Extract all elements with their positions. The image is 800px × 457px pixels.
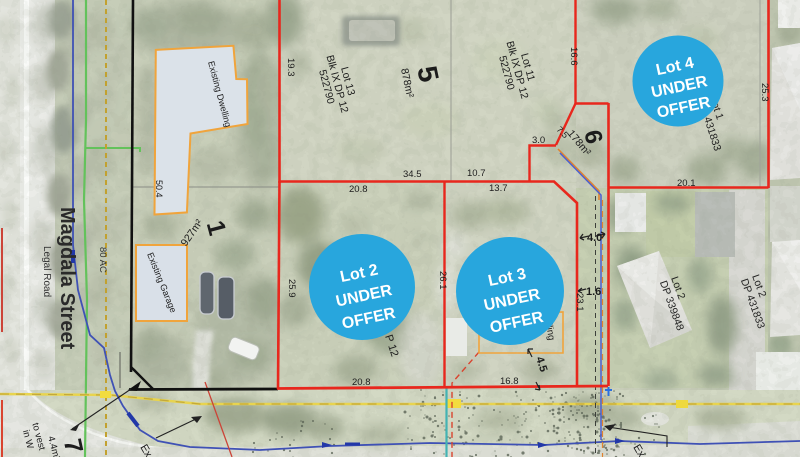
- svg-text:25.3: 25.3: [759, 83, 770, 102]
- svg-text:19.3: 19.3: [285, 58, 296, 77]
- svg-text:20.8: 20.8: [349, 184, 368, 195]
- svg-text:26.1: 26.1: [437, 271, 448, 290]
- svg-text:80 AC: 80 AC: [97, 247, 108, 273]
- svg-text:20.1: 20.1: [677, 178, 696, 189]
- svg-text:23.1: 23.1: [574, 293, 585, 312]
- svg-text:16.8: 16.8: [500, 376, 519, 387]
- svg-text:10.7: 10.7: [467, 168, 486, 179]
- svg-text:13.7: 13.7: [489, 183, 508, 194]
- svg-text:4.0: 4.0: [587, 232, 602, 244]
- svg-text:1.6: 1.6: [586, 286, 601, 298]
- svg-text:Legal Road: Legal Road: [41, 246, 52, 297]
- svg-text:34.5: 34.5: [403, 169, 422, 180]
- svg-text:16.6: 16.6: [568, 47, 579, 66]
- svg-text:20.8: 20.8: [352, 377, 371, 388]
- svg-text:50.4: 50.4: [154, 180, 164, 198]
- svg-text:25.9: 25.9: [286, 279, 297, 298]
- svg-text:Magdala Street: Magdala Street: [56, 207, 78, 350]
- svg-text:3.0: 3.0: [532, 135, 545, 146]
